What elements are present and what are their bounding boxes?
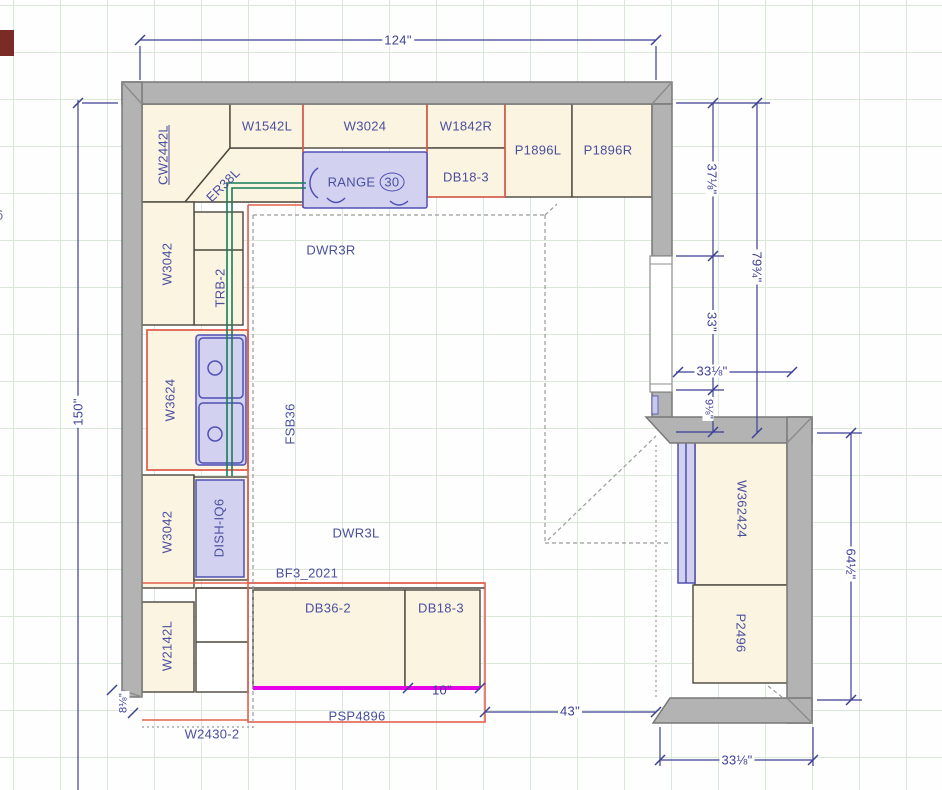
label-w2142l: W2142L <box>161 621 174 671</box>
dim-right-overall: 79¾" <box>751 249 764 284</box>
appliance-shapes[interactable] <box>196 152 695 583</box>
edge-artifact <box>0 30 14 56</box>
blind-corner-boxes <box>196 588 248 692</box>
label-w3042-upper: W3042 <box>161 243 174 286</box>
label-p1896l: P1896L <box>515 144 562 157</box>
dim-annex-width: 33⅛" <box>719 754 754 767</box>
dim-right-window: 33" <box>706 310 719 334</box>
label-trb2: TRB-2 <box>214 268 227 307</box>
dim-left-height: 150" <box>72 396 85 428</box>
label-w2430-2: W2430-2 <box>185 728 240 741</box>
dim-top-width: 124" <box>382 34 414 47</box>
dim-right-lower: 9⅛" <box>703 397 714 421</box>
label-psp4896: PSP4896 <box>328 710 385 723</box>
sink-shape <box>196 335 246 465</box>
label-db36-2: DB36-2 <box>305 602 351 615</box>
label-range: RANGE 30 <box>328 173 405 192</box>
label-fsb36: FSB36 <box>284 403 297 444</box>
label-p2496: P2496 <box>735 613 748 652</box>
label-w3624: W3624 <box>164 379 177 422</box>
label-w362424: W362424 <box>736 480 749 538</box>
floorplan-canvas[interactable]: CW2442L W1542L W3024 W1842R P1896L P1896… <box>0 0 942 790</box>
range-text: RANGE <box>328 176 376 189</box>
label-bf3-2021: BF3_2021 <box>276 567 338 580</box>
dim-right-opening-width: 33⅛" <box>694 365 729 378</box>
label-w1842r: W1842R <box>440 120 492 133</box>
label-cw2442l: CW2442L <box>157 125 170 185</box>
label-w3024: W3024 <box>344 120 387 133</box>
label-db18-3-bottom: DB18-3 <box>418 602 464 615</box>
dim-wall-end: 8⅛" <box>119 691 130 715</box>
window-opening <box>650 256 672 414</box>
label-w1542l: W1542L <box>242 120 292 133</box>
dim-right-upper: 37⅛" <box>706 161 719 196</box>
dim-annex-height: 64½" <box>845 546 858 581</box>
label-dwr3l: DWR3L <box>332 527 379 540</box>
label-db18-3-top: DB18-3 <box>443 171 489 184</box>
edge-text-fragment: 6 <box>0 207 3 224</box>
label-w3042-lower: W3042 <box>161 511 174 554</box>
label-dwr3r: DWR3R <box>306 244 355 257</box>
label-p1896r: P1896R <box>584 144 633 157</box>
label-dish-iq6: DISH-IQ6 <box>213 499 226 558</box>
range-burner-size: 30 <box>379 173 404 192</box>
dim-island-overhang: 10" <box>432 684 452 697</box>
dim-island-to-wall: 43" <box>558 705 582 718</box>
